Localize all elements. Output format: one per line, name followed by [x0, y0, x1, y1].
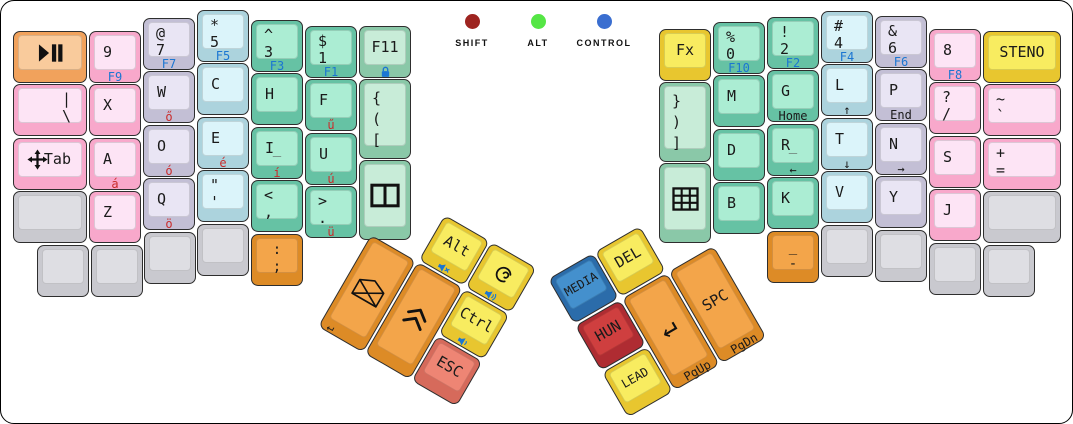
key-dollar-1-front-label: F1	[306, 65, 356, 79]
key-fx-label: Fx	[665, 34, 705, 67]
key-b[interactable]: B	[713, 182, 765, 234]
key-t[interactable]: T↓	[821, 118, 873, 170]
key-dollar-1-label: $1	[318, 33, 327, 67]
key-percent-0-front-label: F10	[714, 61, 764, 75]
key-i[interactable]: I_í	[251, 127, 303, 179]
key-media-label: MEDIA	[556, 260, 607, 309]
key-colon-semicolon[interactable]: :;	[251, 234, 303, 286]
key-percent-0[interactable]: %0F10	[713, 22, 765, 74]
key-t-label: T	[827, 123, 867, 156]
key-less-comma[interactable]: <,	[251, 180, 303, 232]
key-d-label: D	[719, 134, 759, 167]
key-8[interactable]: 8F8	[929, 29, 981, 81]
key-star-5[interactable]: *5F5	[197, 10, 249, 62]
key-greater-period[interactable]: >.ü	[305, 186, 357, 238]
key-m-label: M	[719, 80, 759, 113]
key-blank[interactable]	[37, 245, 89, 297]
key-pipe-backslash[interactable]: |\	[13, 84, 87, 136]
key-w-front-label: ő	[144, 110, 194, 124]
key-question-slash[interactable]: ?/	[929, 82, 981, 134]
key-w[interactable]: Wő	[143, 71, 195, 123]
key-amp-6-label: &6	[888, 23, 897, 57]
key-8-front-label: F8	[930, 68, 980, 82]
key-k[interactable]: K	[767, 177, 819, 229]
key-exclam-2[interactable]: !2F2	[767, 17, 819, 69]
key-caret-3-label: ^3	[264, 27, 273, 61]
key-greater-period-label: >.	[318, 193, 327, 227]
key-e-label: E	[203, 122, 243, 155]
key-plus-equals-label: +=	[996, 145, 1005, 179]
key-tilde-backtick[interactable]: ~`	[983, 84, 1061, 136]
play-pause-icon	[19, 36, 81, 69]
key-q-front-label: ö	[144, 217, 194, 231]
key-at-7-label: @7	[156, 25, 165, 59]
indicator-control-led	[597, 14, 612, 29]
key-open-brackets-label: {([	[372, 88, 381, 151]
key-c[interactable]: C	[197, 63, 249, 115]
key-f[interactable]: Fű	[305, 79, 357, 131]
key-question-slash-label: ?/	[942, 89, 951, 123]
key-o-label: O	[149, 130, 189, 163]
key-w-label: W	[149, 76, 189, 109]
key-blank[interactable]	[983, 245, 1035, 297]
key-q[interactable]: Qö	[143, 178, 195, 230]
key-amp-6-front-label: F6	[876, 55, 926, 69]
key-f11-lock-icon	[360, 65, 410, 79]
key-quote-apostrophe[interactable]: "'	[197, 170, 249, 222]
key-at-7-front-label: F7	[144, 57, 194, 71]
key-underscore-hyphen[interactable]: _-	[767, 231, 819, 283]
key-blank[interactable]	[197, 224, 249, 276]
key-c-label: C	[203, 68, 243, 101]
key-f-front-label: ű	[306, 118, 356, 132]
key-tab-label: Tab	[19, 143, 81, 176]
key-colon-semicolon-label: :;	[257, 239, 297, 272]
key-y[interactable]: Y	[875, 176, 927, 228]
key-y-label: Y	[881, 181, 921, 214]
indicator-control-label: CONTROL	[564, 38, 644, 48]
key-h-label: H	[257, 78, 297, 111]
key-k-label: K	[773, 182, 813, 215]
key-j[interactable]: J	[929, 189, 981, 241]
key-b-label: B	[719, 187, 759, 220]
key-star-5-label: *5	[210, 17, 219, 51]
key-blank[interactable]	[983, 191, 1061, 243]
key-fx[interactable]: Fx	[659, 29, 711, 81]
key-blank[interactable]	[929, 243, 981, 295]
key-tab[interactable]: Tab	[13, 138, 87, 190]
key-e-front-label: é	[198, 156, 248, 170]
key-n-front-label: →	[876, 162, 926, 176]
key-plus-equals[interactable]: +=	[983, 138, 1061, 190]
key-caret-3[interactable]: ^3F3	[251, 20, 303, 72]
key-tilde-backtick-label: ~`	[996, 91, 1005, 125]
key-pipe-backslash-label: |\	[62, 91, 71, 125]
key-i-hold-label: _	[257, 141, 297, 157]
key-o-front-label: ó	[144, 164, 194, 178]
key-n-label: N	[881, 128, 921, 161]
key-i-front-label: í	[252, 166, 302, 180]
key-f-label: F	[311, 84, 351, 117]
key-exclam-2-front-label: F2	[768, 56, 818, 70]
key-star-5-front-label: F5	[198, 49, 248, 63]
key-blank[interactable]	[144, 232, 196, 284]
key-blank[interactable]	[91, 245, 143, 297]
key-blank[interactable]	[821, 225, 873, 277]
key-g-label: G	[773, 75, 813, 108]
key-z[interactable]: Z	[89, 191, 141, 243]
key-exclam-2-label: !2	[780, 24, 789, 58]
key-f11[interactable]: F11	[359, 26, 411, 78]
key-p[interactable]: PEnd	[875, 69, 927, 121]
key-9-label: 9	[95, 36, 135, 69]
key-open-brackets[interactable]: {([	[359, 79, 411, 159]
key-hash-4-label: #4	[834, 18, 843, 52]
key-greater-period-front-label: ü	[306, 225, 356, 239]
key-l-front-label: ↑	[822, 103, 872, 117]
key-blank[interactable]	[13, 191, 87, 243]
key-percent-0-label: %0	[726, 29, 735, 63]
key-play-pause[interactable]	[13, 31, 87, 83]
key-u-front-label: ú	[306, 172, 356, 186]
key-q-label: Q	[149, 183, 189, 216]
key-s-label: S	[935, 141, 975, 174]
key-dollar-1[interactable]: $1F1	[305, 26, 357, 78]
key-hash-4[interactable]: #4F4	[821, 11, 873, 63]
key-d[interactable]: D	[713, 129, 765, 181]
key-underscore-hyphen-label: _-	[773, 236, 813, 269]
key-l-label: L	[827, 69, 867, 102]
key-at-7[interactable]: @7F7	[143, 18, 195, 70]
indicator-alt-led	[531, 14, 546, 29]
key-hash-4-front-label: F4	[822, 50, 872, 64]
key-g-front-label: Home	[768, 109, 818, 123]
key-m[interactable]: M	[713, 75, 765, 127]
key-p-label: P	[881, 74, 921, 107]
key-u-label: U	[311, 138, 351, 171]
key-r-hold-label: _	[773, 138, 813, 154]
keyboard-layout-canvas: |\Tab9F9XAáZ@7F7WőOóQö*5F5CEé"'^3F3HI_í<…	[0, 0, 1073, 424]
key-x-label: X	[95, 89, 135, 122]
key-t-front-label: ↓	[822, 157, 872, 171]
key-x[interactable]: X	[89, 84, 141, 136]
key-f11-label: F11	[365, 31, 405, 64]
key-o[interactable]: Oó	[143, 125, 195, 177]
key-caret-3-front-label: F3	[252, 59, 302, 73]
indicator-shift-led	[465, 14, 480, 29]
indicator-control: CONTROL	[564, 14, 644, 48]
key-9[interactable]: 9F9	[89, 31, 141, 83]
key-amp-6[interactable]: &6F6	[875, 16, 927, 68]
key-steno-label: STENO	[989, 36, 1055, 69]
key-g[interactable]: GHome	[767, 70, 819, 122]
key-v-label: V	[827, 176, 867, 209]
key-u[interactable]: Uú	[305, 133, 357, 185]
key-v[interactable]: V	[821, 171, 873, 223]
key-close-brackets-label: })]	[672, 91, 681, 154]
key-9-front-label: F9	[90, 70, 140, 84]
key-e[interactable]: Eé	[197, 117, 249, 169]
key-s[interactable]: S	[929, 136, 981, 188]
key-quote-apostrophe-label: "'	[210, 177, 219, 211]
key-h[interactable]: H	[251, 73, 303, 125]
key-r-front-label: ←	[768, 163, 818, 177]
key-a-front-label: á	[90, 177, 140, 191]
key-blank[interactable]	[875, 230, 927, 282]
key-z-label: Z	[95, 196, 135, 229]
key-a-label: A	[95, 143, 135, 176]
key-steno[interactable]: STENO	[983, 31, 1061, 83]
key-j-label: J	[935, 194, 975, 227]
key-del-label: DEL	[602, 233, 653, 282]
key-less-comma-label: <,	[264, 187, 273, 221]
key-p-front-label: End	[876, 108, 926, 122]
key-8-label: 8	[935, 34, 975, 67]
key-a[interactable]: Aá	[89, 138, 141, 190]
key-n[interactable]: N→	[875, 123, 927, 175]
key-r[interactable]: R_←	[767, 124, 819, 176]
key-close-brackets[interactable]: })]	[659, 82, 711, 162]
key-l[interactable]: L↑	[821, 64, 873, 116]
